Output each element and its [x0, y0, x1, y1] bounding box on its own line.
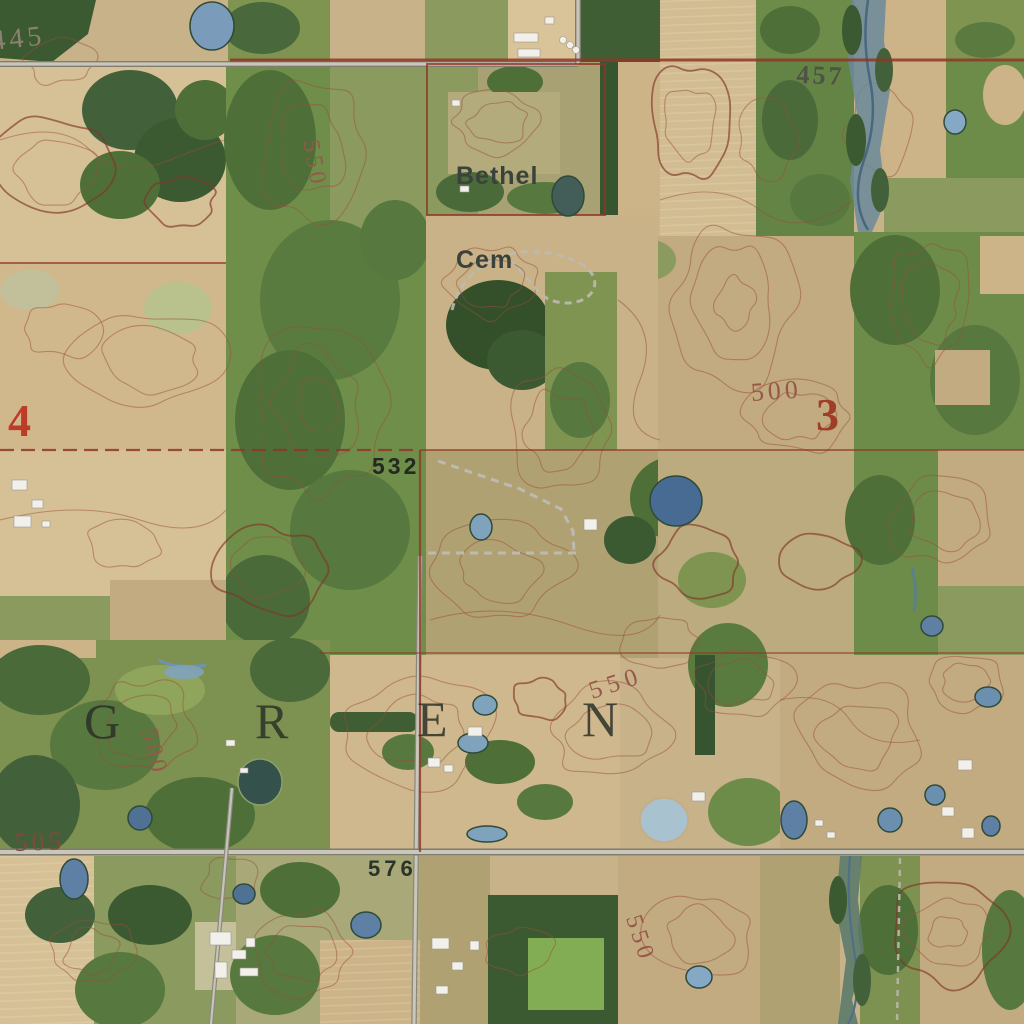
pond [640, 798, 688, 842]
pond [975, 687, 1001, 707]
pond [467, 826, 507, 842]
building [240, 968, 258, 976]
building [246, 938, 255, 947]
pond [921, 616, 943, 636]
building [215, 962, 227, 978]
building [514, 33, 538, 42]
building [545, 17, 554, 24]
pond [128, 806, 152, 830]
building [452, 100, 460, 106]
pond [60, 859, 88, 899]
silo [567, 42, 574, 49]
building [452, 962, 463, 970]
pond [238, 759, 282, 805]
building [210, 932, 231, 945]
building [14, 516, 31, 527]
pond [982, 816, 1000, 836]
silo [573, 47, 580, 54]
building [232, 950, 246, 959]
building [468, 727, 482, 736]
pond [944, 110, 966, 134]
building [470, 941, 479, 950]
pond [878, 808, 902, 832]
building [692, 792, 705, 801]
pond [470, 514, 492, 540]
pond [473, 695, 497, 715]
building [942, 807, 954, 816]
terrain-image [0, 0, 1024, 1024]
building [12, 480, 27, 490]
building [962, 828, 974, 838]
pond [925, 785, 945, 805]
building [240, 768, 248, 773]
building [428, 758, 440, 767]
building [827, 832, 835, 838]
pond [781, 801, 807, 839]
silo [560, 37, 567, 44]
building [958, 760, 972, 770]
pond [650, 476, 702, 526]
building [460, 186, 469, 192]
building [42, 521, 50, 527]
pond [233, 884, 255, 904]
building [436, 986, 448, 994]
building [226, 740, 235, 746]
building [444, 765, 453, 772]
building [815, 820, 823, 826]
topo-map: 445 550 Bethel Cem 457 4 3 532 500 G R E… [0, 0, 1024, 1024]
building [432, 938, 449, 949]
building [518, 49, 540, 57]
building [32, 500, 43, 508]
pond [552, 176, 584, 216]
pond [190, 2, 234, 50]
building [584, 519, 597, 530]
pond [686, 966, 712, 988]
pond [351, 912, 381, 938]
